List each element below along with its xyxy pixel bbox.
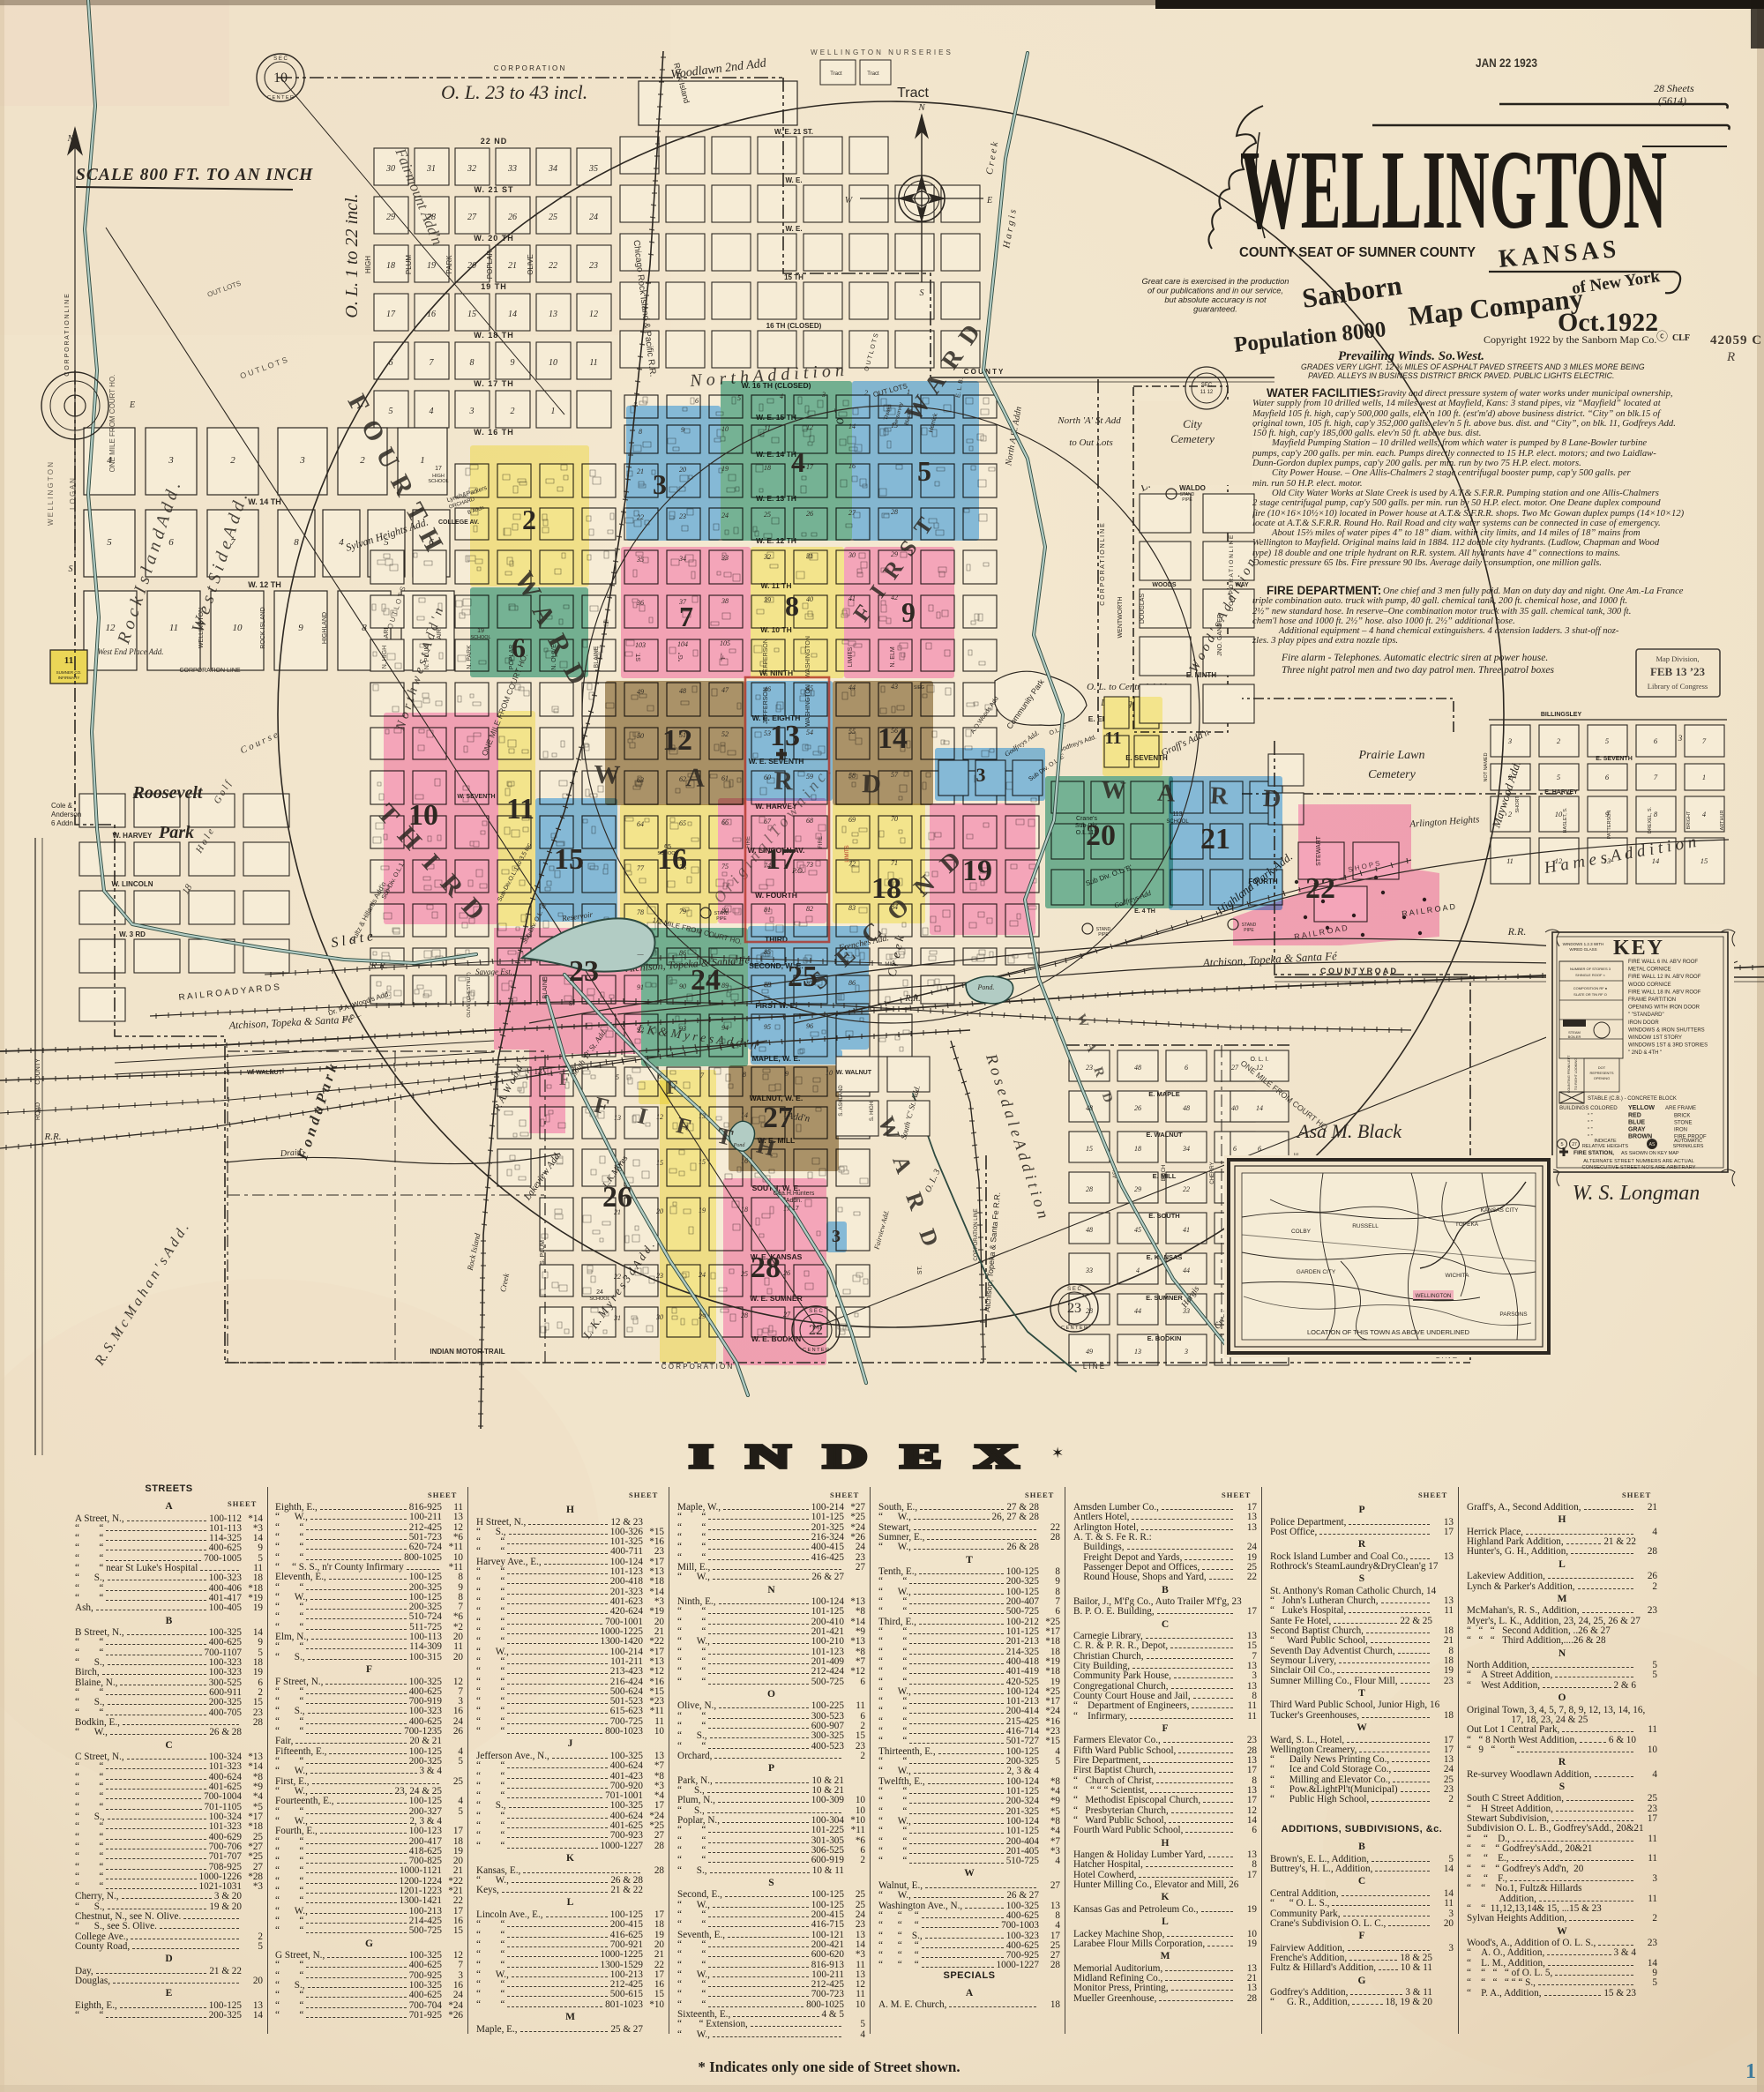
svg-text:guaranteed.: guaranteed.: [1193, 305, 1237, 314]
svg-text:42059 C: 42059 C: [1710, 333, 1762, 347]
svg-text:Great care is exercised in the: Great care is exercised in the productio…: [1142, 277, 1289, 286]
svg-text:GRADES VERY LIGHT. 12 ¾ MILES: GRADES VERY LIGHT. 12 ¾ MILES OF ASPHALT…: [1301, 362, 1645, 371]
svg-text:Copyright 1922 by the Sanborn: Copyright 1922 by the Sanborn Map Co.: [1484, 333, 1656, 346]
svg-text:COUNTY SEAT OF SUMNER COUNTY: COUNTY SEAT OF SUMNER COUNTY: [1239, 245, 1476, 260]
svg-text:28 Sheets: 28 Sheets: [1654, 82, 1694, 94]
svg-text:Library of Congress: Library of Congress: [1648, 682, 1708, 691]
svg-text:PAVED. ALLEYS IN BUSINESS DIST: PAVED. ALLEYS IN BUSINESS DISTRICT BRICK…: [1308, 371, 1614, 380]
svg-text:Three night patrol men and two: Three night patrol men and two day patro…: [1282, 665, 1555, 676]
svg-text:but absolute accuracy is not: but absolute accuracy is not: [1164, 295, 1267, 304]
svg-text:CLF: CLF: [1672, 333, 1690, 343]
svg-text:FEB 13 ’23: FEB 13 ’23: [1650, 665, 1706, 678]
svg-text:WELLINGTON: WELLINGTON: [1240, 127, 1667, 252]
svg-text:Prevailing Winds. So.West.: Prevailing Winds. So.West.: [1338, 349, 1484, 363]
svg-text:ⓒ: ⓒ: [1656, 330, 1668, 343]
svg-text:Map Division,: Map Division,: [1656, 654, 1699, 663]
svg-text:Sanborn: Sanborn: [1300, 269, 1403, 313]
svg-text:R: R: [1726, 350, 1735, 364]
svg-text:JAN 22 1923: JAN 22 1923: [1476, 56, 1537, 70]
svg-text:Fire alarm - Telephones. Au: Fire alarm - Telephones. Automatic elect…: [1281, 653, 1548, 663]
svg-text:of our publications and in our: of our publications and in our service,: [1147, 287, 1283, 295]
